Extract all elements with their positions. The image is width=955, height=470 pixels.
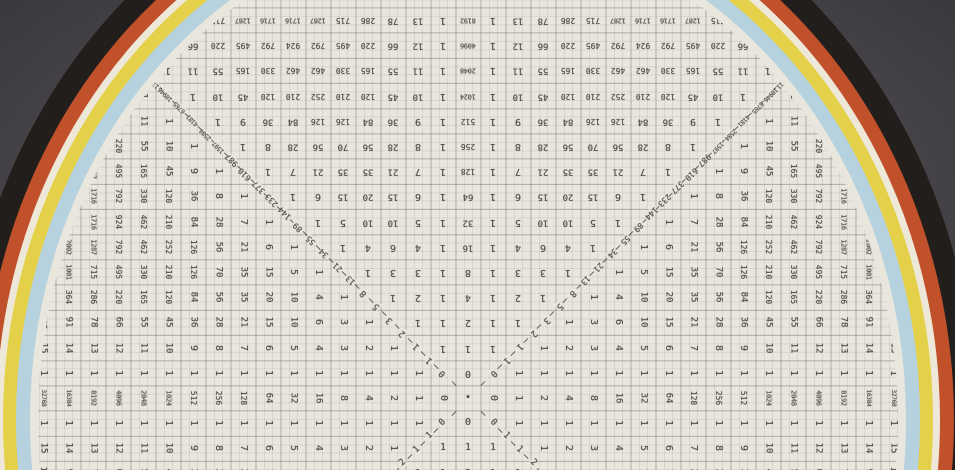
grid-cell: 1	[888, 420, 898, 426]
grid-cell: 9	[188, 445, 198, 451]
grid-cell: 28	[638, 142, 649, 151]
grid-cell: 1	[490, 217, 496, 227]
grid-cell: 11	[738, 66, 749, 75]
grid-cell: 84	[189, 292, 198, 303]
grid-cell: 1	[613, 370, 623, 376]
grid-cell: 120	[164, 290, 172, 304]
grid-cell: 10	[764, 342, 773, 353]
grid-cell: 4	[613, 294, 623, 300]
diagonal-dash	[523, 454, 528, 459]
axis-cell: 4096	[460, 42, 476, 49]
grid-cell: 70	[588, 142, 599, 151]
axis-cell: 2048	[140, 390, 147, 406]
diagonal-dash	[394, 324, 399, 329]
grid-cell: 495	[236, 41, 250, 49]
grid-cell: 10	[363, 217, 374, 226]
grid-cell: 3	[338, 345, 348, 351]
grid-cell: 924	[636, 41, 650, 49]
grid-cell: 9	[738, 345, 748, 351]
grid-cell: 84	[363, 116, 374, 125]
diagonal-dash	[589, 271, 594, 276]
grid-cell: 12	[413, 41, 424, 50]
grid-cell: 1	[490, 65, 496, 75]
axis-cell: 64	[664, 393, 673, 404]
grid-cell: 5	[590, 217, 596, 227]
grid-cell: 1	[490, 191, 496, 201]
grid-cell: 126	[311, 117, 325, 125]
grid-cell: 84	[563, 116, 574, 125]
axis-cell: 1024	[165, 390, 172, 406]
grid-cell: 1	[363, 370, 373, 376]
axis-cell: 1024	[460, 92, 476, 99]
grid-cell: 45	[164, 166, 173, 177]
grid-cell: 3	[588, 319, 598, 325]
grid-cell: 220	[211, 41, 225, 49]
diagonal-dash	[421, 351, 426, 356]
grid-cell: 330	[336, 66, 350, 74]
grid-cell: 15	[664, 267, 673, 278]
grid-cell: 1	[863, 370, 873, 376]
grid-cell: 1	[363, 420, 373, 426]
grid-cell: 1	[615, 217, 621, 227]
axis-cell: 16	[614, 393, 623, 404]
grid-cell: 1	[188, 370, 198, 376]
diagonal-dash	[629, 231, 634, 236]
axis-cell: 8192	[840, 390, 847, 406]
grid-cell: 924	[814, 214, 822, 228]
grid-cell: 165	[361, 66, 375, 74]
grid-cell: 1	[340, 242, 346, 252]
grid-cell: 7	[290, 166, 296, 176]
grid-cell: 495	[114, 265, 122, 279]
grid-cell: 210	[764, 265, 772, 279]
grid-cell: 10	[413, 91, 424, 100]
grid-cell: 10	[563, 217, 574, 226]
grid-cell: 1	[813, 420, 823, 426]
grid-cell: 1	[490, 40, 496, 50]
grid-cell: 1	[440, 292, 446, 302]
grid-cell: 6	[663, 445, 673, 451]
fibonacci-cell: 0	[437, 367, 449, 379]
grid-cell: 28	[288, 142, 299, 151]
grid-cell: 4	[313, 345, 323, 351]
grid-cell: 1	[313, 370, 323, 376]
grid-cell: 14	[864, 342, 873, 353]
grid-cell: 35	[338, 167, 349, 176]
grid-cell: 1	[490, 267, 496, 277]
axis-cell: 1	[413, 395, 423, 401]
grid-cell: 1	[415, 317, 421, 327]
grid-cell: 11	[139, 342, 148, 353]
grid-cell: 20	[363, 192, 374, 201]
grid-cell: 1	[638, 420, 648, 426]
grid-cell: 70	[714, 267, 723, 278]
grid-cell: 1	[688, 370, 698, 376]
diagonal-dash	[480, 381, 485, 386]
axis-cell: 4	[465, 292, 471, 302]
grid-cell: 1	[215, 116, 221, 126]
grid-cell: 21	[689, 317, 698, 328]
grid-cell: 330	[789, 265, 797, 279]
grid-cell: 3	[338, 445, 348, 451]
axis-cell: 1	[465, 343, 471, 353]
grid-cell: 210	[586, 92, 600, 100]
axis-cell: 0	[488, 395, 498, 401]
grid-cell: 56	[363, 142, 374, 151]
grid-cell: 462	[311, 66, 325, 74]
grid-cell: 36	[263, 116, 274, 125]
axis-cell: 0	[465, 418, 471, 428]
grid-cell: 715	[336, 16, 350, 24]
grid-cell: 8	[515, 141, 521, 151]
axis-cell: 8	[588, 395, 598, 401]
grid-cell: 1	[538, 370, 548, 376]
grid-cell: 1	[238, 370, 248, 376]
grid-cell: 10	[639, 317, 648, 328]
grid-cell: 1	[163, 370, 173, 376]
axis-cell: 512	[461, 117, 475, 125]
grid-cell: 120	[361, 92, 375, 100]
axis-cell: 1	[513, 395, 523, 401]
grid-cell: 210	[164, 214, 172, 228]
grid-cell: 7	[238, 345, 248, 351]
grid-cell: 1716	[840, 214, 847, 230]
grid-cell: 1	[540, 292, 546, 302]
grid-cell: 1	[163, 420, 173, 426]
grid-cell: 28	[388, 142, 399, 151]
grid-cell: 1	[713, 168, 723, 174]
grid-cell: 9	[240, 116, 246, 126]
grid-cell: 35	[239, 267, 248, 278]
grid-cell: 1716	[90, 189, 97, 205]
grid-cell: 165	[139, 290, 147, 304]
grid-cell: 1	[515, 317, 521, 327]
grid-cell: 1716	[285, 17, 301, 24]
grid-cell: 11	[789, 342, 798, 353]
axis-cell: 512	[739, 391, 747, 405]
axis-cell: 64	[463, 192, 474, 201]
diagonal-dash	[381, 311, 386, 316]
grid-cell: 252	[164, 240, 172, 254]
axis-cell: 2048	[790, 390, 797, 406]
grid-cell: 165	[139, 164, 147, 178]
grid-cell: 8	[713, 345, 723, 351]
grid-cell: 1	[638, 370, 648, 376]
grid-cell: 13	[839, 443, 848, 454]
grid-cell: 6	[263, 345, 273, 351]
grid-cell: 13	[89, 342, 98, 353]
grid-cell: 45	[164, 317, 173, 328]
grid-cell: 1	[238, 420, 248, 426]
grid-cell: 5	[340, 217, 346, 227]
grid-cell: 462	[286, 66, 300, 74]
grid-cell: 4	[565, 242, 571, 252]
grid-cell: 792	[661, 41, 675, 49]
grid-cell: 5	[638, 345, 648, 351]
axis-cell: 32768	[890, 389, 896, 406]
axis-cell: 1024	[765, 390, 772, 406]
grid-cell: 10	[213, 91, 224, 100]
grid-cell: 1	[413, 370, 423, 376]
grid-cell: 495	[814, 265, 822, 279]
grid-cell: 12	[114, 342, 123, 353]
grid-cell: 28	[214, 216, 223, 227]
axis-cell: 16384	[865, 389, 871, 406]
axis-cell: 512	[189, 391, 197, 405]
grid-cell: 220	[561, 41, 575, 49]
grid-cell: 715	[89, 265, 97, 279]
grid-cell: 364	[864, 290, 872, 304]
grid-cell: 120	[164, 189, 172, 203]
grid-cell: 210	[164, 265, 172, 279]
grid-cell: 55	[388, 66, 399, 75]
grid-cell: 9	[690, 116, 696, 126]
grid-cell: 1	[315, 217, 321, 227]
grid-cell: 10	[289, 317, 298, 328]
grid-cell: 364	[64, 290, 72, 304]
grid-cell: 1	[665, 166, 671, 176]
grid-cell: 1	[490, 317, 496, 327]
grid-cell: 924	[114, 214, 122, 228]
grid-cell: 5	[415, 217, 421, 227]
grid-cell: 210	[336, 92, 350, 100]
grid-cell: 5	[515, 217, 521, 227]
axis-cell: 4	[363, 395, 373, 401]
grid-cell: 10	[513, 91, 524, 100]
grid-cell: 1	[88, 420, 98, 426]
grid-cell: 1	[240, 141, 246, 151]
grid-cell: 6	[663, 345, 673, 351]
grid-cell: 1	[538, 345, 548, 351]
grid-cell: 55	[713, 66, 724, 75]
diagonal-dash	[368, 298, 373, 303]
grid-cell: 1	[490, 116, 496, 126]
grid-cell: 7	[238, 445, 248, 451]
grid-cell: 165	[789, 164, 797, 178]
grid-cell: 14	[64, 443, 73, 454]
grid-cell: 6	[515, 191, 521, 201]
grid-cell: 2	[515, 292, 521, 302]
grid-cell: 3	[515, 267, 521, 277]
grid-cell: 462	[611, 66, 625, 74]
grid-cell: 1	[490, 292, 496, 302]
grid-cell: 35	[689, 292, 698, 303]
grid-cell: 45	[388, 91, 399, 100]
diagonal-dash	[576, 285, 581, 290]
grid-cell: 56	[214, 292, 223, 303]
grid-cell: 9	[188, 345, 198, 351]
grid-cell: 220	[361, 41, 375, 49]
diagonal-dash	[355, 285, 360, 290]
grid-cell: 12	[114, 443, 123, 454]
diagonal-dash	[421, 441, 426, 446]
grid-cell: 35	[563, 167, 574, 176]
grid-cell: 495	[814, 164, 822, 178]
grid-cell: 10	[713, 91, 724, 100]
grid-cell: 45	[764, 166, 773, 177]
grid-cell: 91	[64, 317, 73, 328]
axis-cell: 256	[214, 391, 222, 405]
grid-cell: 14	[864, 443, 873, 454]
axis-cell: 128	[239, 391, 247, 405]
axis-cell: 0	[465, 368, 471, 378]
grid-cell: 1	[238, 193, 248, 199]
grid-cell: 6	[315, 191, 321, 201]
grid-cell: 13	[413, 16, 424, 25]
grid-cell: 1	[663, 219, 673, 225]
grid-cell: 1	[490, 343, 496, 353]
grid-cell: 3	[390, 267, 396, 277]
grid-cell: 15	[664, 317, 673, 328]
grid-cell: 10	[164, 443, 173, 454]
grid-cell: 1	[63, 370, 73, 376]
grid-cell: 1	[738, 143, 748, 149]
grid-cell: 1	[338, 420, 348, 426]
grid-cell: 462	[139, 214, 147, 228]
grid-cell: 1	[490, 443, 496, 453]
grid-cell: 1	[613, 269, 623, 275]
diagonal-dash	[342, 271, 347, 276]
grid-cell: 3	[588, 345, 598, 351]
grid-cell: 220	[114, 139, 122, 153]
grid-cell: 1	[638, 244, 648, 250]
grid-cell: 462	[636, 66, 650, 74]
grid-cell: 1	[688, 193, 698, 199]
grid-cell: 15	[388, 192, 399, 201]
grid-cell: 56	[613, 142, 624, 151]
grid-cell: 28	[714, 317, 723, 328]
grid-cell: 126	[189, 265, 197, 279]
grid-cell: 1	[440, 343, 446, 353]
grid-cell: 165	[789, 290, 797, 304]
grid-cell: 66	[814, 317, 823, 328]
grid-cell: 8	[713, 445, 723, 451]
grid-cell: 1	[388, 420, 398, 426]
axis-cell: 2	[388, 395, 398, 401]
grid-cell: 8	[415, 141, 421, 151]
fibonacci-cell: 8	[358, 287, 370, 299]
axis-cell: 8	[338, 395, 348, 401]
grid-cell: 70	[214, 267, 223, 278]
grid-cell: 56	[313, 142, 324, 151]
grid-cell: 1716	[90, 214, 97, 230]
diagonal-dash	[302, 231, 307, 236]
grid-cell: 1	[563, 319, 573, 325]
axis-cell: 64	[264, 393, 273, 404]
diagonal-dash	[510, 351, 515, 356]
grid-cell: 330	[586, 66, 600, 74]
grid-cell: 2	[363, 445, 373, 451]
grid-cell: 792	[114, 240, 122, 254]
grid-cell: 7	[688, 445, 698, 451]
grid-cell: 55	[538, 66, 549, 75]
grid-cell: 165	[561, 66, 575, 74]
axis-cell: 128	[689, 391, 697, 405]
grid-cell: 1	[738, 420, 748, 426]
grid-cell: 715	[586, 16, 600, 24]
grid-cell: 11	[139, 115, 148, 126]
grid-cell: 11	[188, 66, 199, 75]
grid-cell: 1	[490, 141, 496, 151]
grid-cell: 12	[814, 443, 823, 454]
grid-cell: 13	[513, 16, 524, 25]
grid-cell: 55	[139, 141, 148, 152]
grid-cell: 56	[714, 241, 723, 252]
grid-cell: 1	[713, 370, 723, 376]
grid-cell: 1	[740, 91, 746, 101]
grid-cell: 1	[763, 420, 773, 426]
grid-cell: 1	[263, 420, 273, 426]
grid-cell: 1	[365, 267, 371, 277]
grid-cell: 1	[390, 292, 396, 302]
grid-cell: 1	[213, 168, 223, 174]
axis-cell: 128	[461, 167, 475, 175]
grid-cell: 7	[688, 345, 698, 351]
fibonacci-cell: 0	[437, 417, 449, 429]
grid-cell: 1	[738, 370, 748, 376]
grid-cell: 5	[638, 445, 648, 451]
grid-cell: 21	[689, 241, 698, 252]
grid-cell: 120	[764, 290, 772, 304]
grid-cell: 1001	[65, 264, 72, 280]
grid-cell: 165	[686, 66, 700, 74]
grid-cell: 15	[889, 443, 898, 454]
axis-cell: 2	[538, 395, 548, 401]
grid-cell: 35	[588, 167, 599, 176]
grid-cell: 21	[613, 167, 624, 176]
grid-cell: 1	[113, 420, 123, 426]
grid-cell: 1	[440, 267, 446, 277]
grid-cell: 126	[586, 117, 600, 125]
grid-cell: 1	[313, 269, 323, 275]
grid-cell: 8	[213, 193, 223, 199]
grid-cell: 35	[363, 167, 374, 176]
grid-cell: 2	[563, 345, 573, 351]
grid-cell: 1	[688, 420, 698, 426]
grid-cell: 1	[563, 370, 573, 376]
grid-cell: 1	[590, 242, 596, 252]
grid-cell: 495	[586, 41, 600, 49]
grid-cell: 1	[663, 370, 673, 376]
axis-cell: 256	[461, 142, 475, 150]
grid-cell: 330	[139, 265, 147, 279]
grid-cell: 252	[764, 240, 772, 254]
grid-cell: 56	[214, 241, 223, 252]
grid-cell: 2	[415, 292, 421, 302]
grid-cell: 5	[638, 269, 648, 275]
grid-cell: 84	[288, 116, 299, 125]
grid-cell: 1	[213, 370, 223, 376]
grid-cell: 7	[640, 166, 646, 176]
grid-cell: 1287	[840, 239, 847, 255]
grid-cell: 1	[263, 219, 273, 225]
diagonal-dash	[523, 338, 528, 343]
grid-cell: 55	[789, 317, 798, 328]
grid-cell: 66	[388, 41, 399, 50]
axis-cell: 2	[465, 317, 471, 327]
grid-cell: 9	[738, 445, 748, 451]
grid-cell: 1	[490, 166, 496, 176]
grid-cell: 66	[114, 317, 123, 328]
grid-cell: 1	[190, 91, 196, 101]
grid-cell: 10	[388, 217, 399, 226]
grid-cell: 1	[288, 244, 298, 250]
diagonal-dash	[616, 245, 621, 250]
diagonal-dash	[328, 258, 333, 263]
grid-cell: 11	[513, 66, 524, 75]
grid-cell: 1287	[685, 17, 701, 24]
grid-cell: 120	[764, 189, 772, 203]
